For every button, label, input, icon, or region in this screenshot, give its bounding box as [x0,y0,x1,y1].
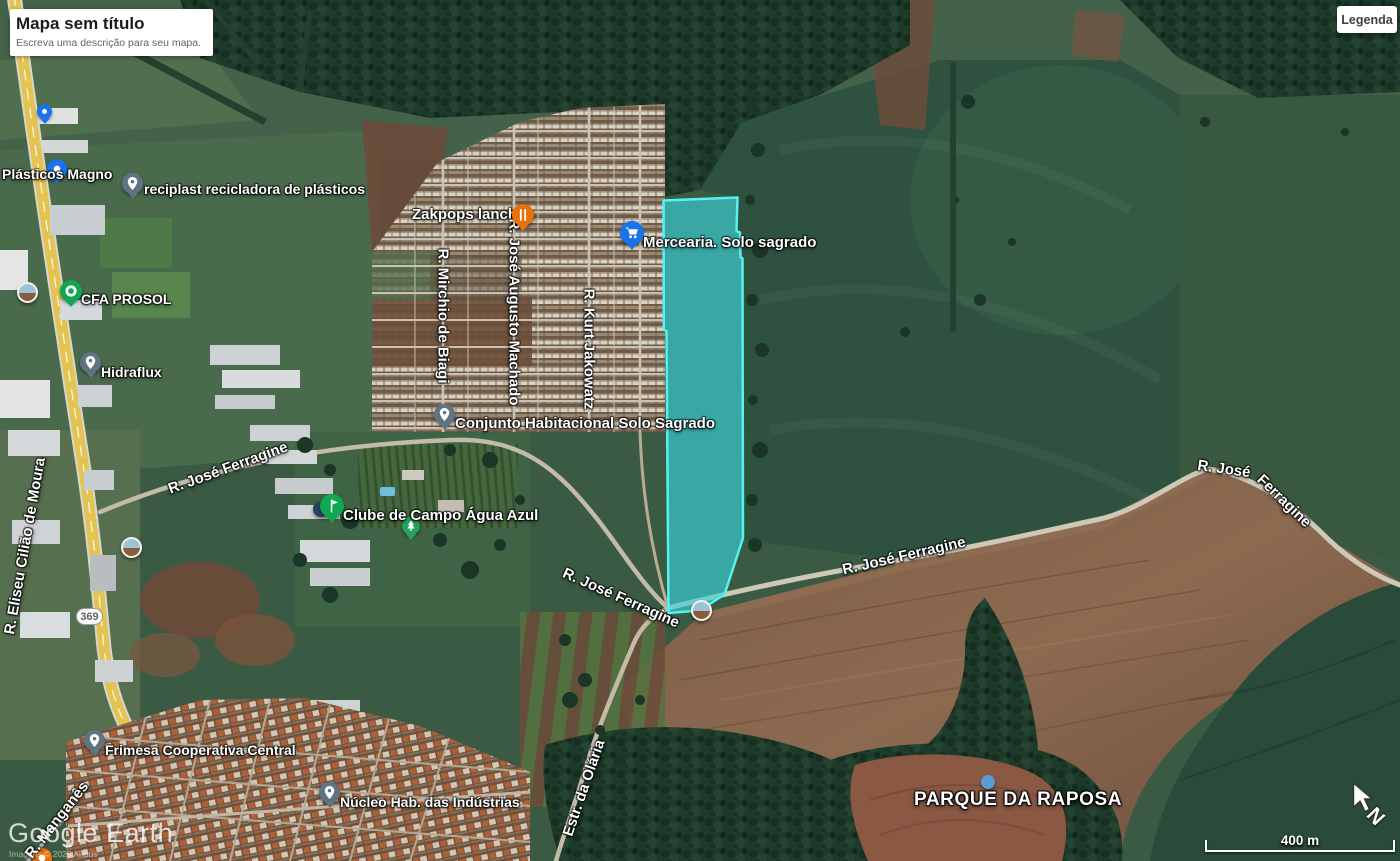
nucleo-placemark-icon[interactable] [319,782,340,803]
conjunto-placemark-icon[interactable] [434,404,455,425]
label-mercearia[interactable]: Mercearia. Solo sagrado [643,234,816,251]
label-hidraflux[interactable]: Hidraflux [101,364,162,380]
legend-button[interactable]: Legenda [1337,6,1397,33]
label-frimesa[interactable]: Frimesa Cooperativa Central [105,742,296,758]
road-label-jose-augusto-machado: R. José Augusto Machado [506,219,523,406]
imagery-attribution: Imagens © 2025 Airbus [9,849,97,859]
label-plasticos-magno[interactable]: Plásticos Magno [2,166,112,182]
road-label-kurt-jakowatz: R. Kurt Jakowatz [581,289,598,410]
label-nucleo-hab[interactable]: Núcleo Hab. das Indústrias [340,794,520,810]
mercearia-shopping-marker[interactable] [620,221,644,245]
photo-marker[interactable] [17,282,38,303]
clube-golf-marker[interactable] [320,494,344,518]
map-viewport[interactable]: Plásticos Magno reciplast recicladora de… [0,0,1400,861]
frimesa-placemark-icon[interactable] [84,730,105,751]
label-cfa-prosol[interactable]: CFA PROSOL [81,291,172,307]
scale-bar-label: 400 m [1207,833,1393,848]
hidraflux-placemark-icon[interactable] [80,352,101,373]
selection-polygon[interactable] [664,198,744,614]
photo-marker[interactable] [691,600,712,621]
label-reciplast[interactable]: reciplast recicladora de plásticos [144,181,365,197]
label-clube-de-campo[interactable]: Clube de Campo Água Azul [343,507,538,524]
reciplast-placemark-icon[interactable] [122,173,143,194]
cfa-prosol-marker[interactable] [60,280,82,302]
map-title: Mapa sem título [16,14,201,34]
scale-bar: 400 m [1205,840,1395,852]
map-description-placeholder[interactable]: Escreva uma descrição para seu mapa. [16,37,201,49]
mouse-cursor-icon [1351,782,1378,817]
parque-poi-marker[interactable] [981,775,995,789]
road-label-mirchio-de-biagi: R. Mirchio de Biagi [435,248,452,383]
route-badge-369: 369 [76,608,103,625]
photo-marker[interactable] [121,537,142,558]
poi-dot-marker[interactable] [37,104,52,119]
label-parque-da-raposa: PARQUE DA RAPOSA [914,789,1122,811]
label-conjunto-habitacional[interactable]: Conjunto Habitacional Solo Sagrado [455,415,715,432]
map-title-card[interactable]: Mapa sem título Escreva uma descrição pa… [10,9,213,56]
zakpops-restaurant-marker[interactable] [512,204,534,226]
google-earth-watermark: Google Earth [8,818,173,849]
